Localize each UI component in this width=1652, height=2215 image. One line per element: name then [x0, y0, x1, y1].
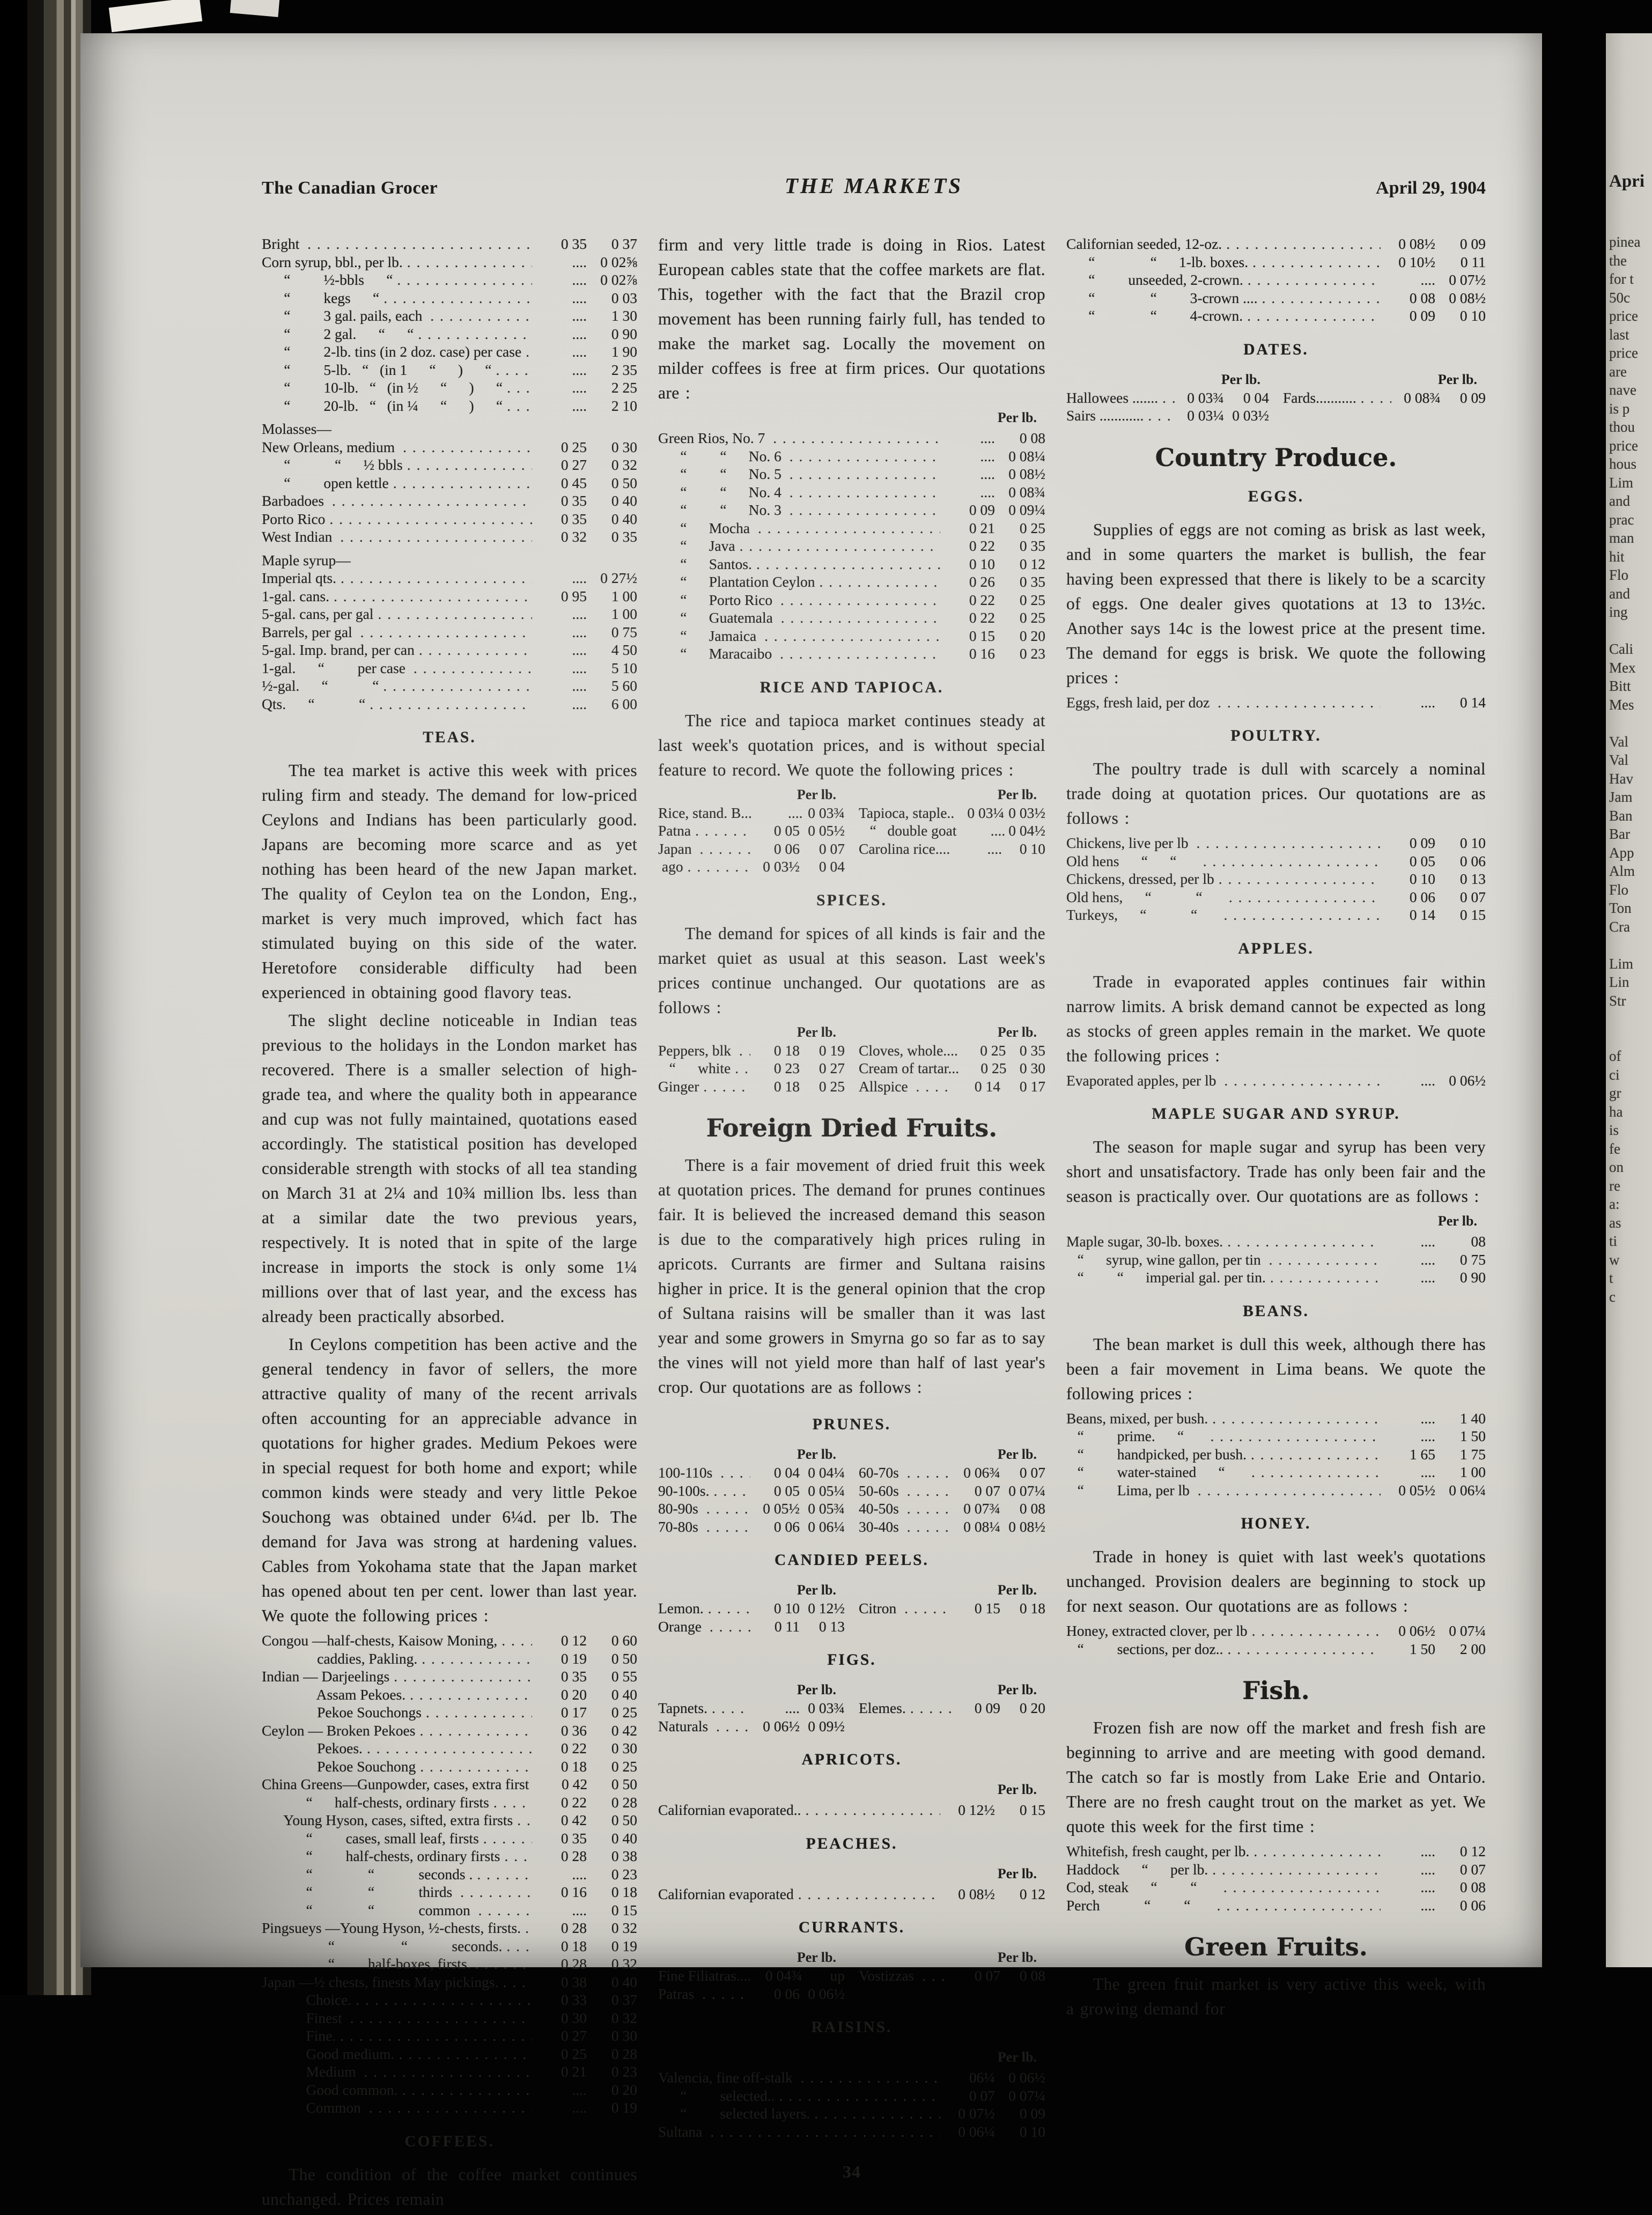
text-fragment: hous: [1609, 455, 1640, 474]
text-fragment: for t: [1609, 270, 1640, 289]
price-row: Qts. “ “....6 00: [262, 695, 637, 713]
per-lb-header: Per lb.: [859, 1581, 1045, 1599]
text-fragment: App: [1609, 844, 1640, 862]
price-row: “ open kettle0 450 50: [262, 474, 637, 492]
poultry-table: Chickens, live per lb 0 090 10Old hens “…: [1066, 834, 1486, 924]
dot-leader: [1262, 289, 1381, 307]
honey-table: Honey, extracted clover, per lb0 06½0 07…: [1066, 1622, 1486, 1658]
text-fragment: Flo: [1609, 881, 1640, 899]
dot-leader: [341, 569, 532, 587]
per-lb-header: Per lb.: [859, 1023, 1045, 1042]
text-fragment: Cra: [1609, 918, 1640, 936]
dot-leader: [916, 1077, 951, 1096]
dot-leader: [505, 1847, 533, 1865]
price-row: “ 2 gal. “ “....0 90: [262, 325, 637, 343]
dot-leader: [764, 627, 940, 645]
price-row: West Indian 0 320 35: [262, 528, 637, 546]
text-fragment: and: [1609, 585, 1640, 603]
dot-leader: [720, 1464, 750, 1482]
per-lb-header: Per lb.: [859, 1948, 1045, 1967]
dot-leader: [1223, 906, 1381, 924]
dot-leader: [907, 1518, 951, 1536]
dot-leader: [422, 1650, 532, 1668]
text-fragment: Ban: [1609, 807, 1640, 825]
text-fragment: Flo: [1609, 566, 1640, 585]
section-heading-currants: CURRANTS.: [658, 1919, 1045, 1937]
price-row: “ half-chests, ordinary firsts0 280 38: [262, 1847, 637, 1865]
dot-leader: [1196, 834, 1381, 852]
coffee-price-table: Green Rios, No. 7 ....0 08 “ “ No. 6 ...…: [658, 429, 1045, 663]
dot-leader: [383, 289, 532, 307]
dot-leader: [790, 501, 940, 519]
per-lb-header: Per lb.: [658, 786, 845, 804]
section-heading-apples: APPLES.: [1066, 940, 1486, 958]
dot-leader: [397, 271, 532, 289]
dot-leader: [340, 2027, 532, 2045]
rice-paragraph: The rice and tapioca market continues st…: [658, 708, 1045, 782]
price-row: Pekoe Souchong0 180 25: [262, 1758, 637, 1776]
middle-column: firm and very little trade is doing in R…: [658, 233, 1045, 2215]
price-row: “ Java0 220 35: [658, 537, 1045, 555]
dot-leader: [503, 1973, 532, 1991]
price-row: Medium 0 210 23: [262, 2063, 637, 2081]
per-lb-header: Per lb.: [859, 1445, 1045, 1464]
per-lb-header: Per lb.: [859, 786, 1045, 804]
text-fragment: on: [1609, 1158, 1640, 1177]
apples-paragraph: Trade in evaporated apples continues fai…: [1066, 970, 1486, 1068]
dot-leader: [475, 1955, 532, 1973]
text-fragment: 50c: [1609, 289, 1640, 307]
page-title: THE MARKETS: [785, 173, 963, 198]
price-row: “ “ No. 5 ....0 08½: [658, 465, 1045, 483]
coffees-paragraph: The condition of the coffee market conti…: [262, 2162, 637, 2212]
per-lb-header: Per lb.: [658, 1865, 1045, 1883]
price-row: “ handpicked, per bush.1 651 75: [1066, 1445, 1486, 1464]
dot-leader: [922, 1967, 951, 1985]
price-row: “ kegs “....0 03: [262, 289, 637, 307]
price-row: “ water-stained “ ....1 00: [1066, 1463, 1486, 1481]
text-fragment: is: [1609, 1121, 1640, 1140]
price-row: Peppers, blk 0 180 19: [658, 1042, 845, 1060]
dot-leader: [378, 605, 532, 623]
dot-leader: [332, 492, 532, 510]
honey-paragraph: Trade in honey is quiet with last week's…: [1066, 1545, 1486, 1619]
dot-leader: [801, 2069, 940, 2087]
text-fragment: Val: [1609, 733, 1640, 751]
per-lb-header: Per lb.: [658, 409, 1045, 427]
dot-leader: [703, 1077, 750, 1096]
price-row: 5-gal. Imp. brand, per can....4 50: [262, 641, 637, 659]
dot-leader: [798, 1885, 940, 1903]
price-row: Assam Pekoes.0 200 40: [262, 1686, 637, 1704]
issue-date: April 29, 1904: [1376, 178, 1486, 198]
text-fragment: thou: [1609, 418, 1640, 437]
text-fragment: Lim: [1609, 955, 1640, 973]
price-row: Haddock “ per lb.....0 07: [1066, 1860, 1486, 1879]
section-heading-rice: RICE AND TAPIOCA.: [658, 679, 1045, 697]
dot-leader: [1210, 1427, 1381, 1445]
text-fragment: t: [1609, 1269, 1640, 1288]
dot-leader: [430, 307, 532, 325]
dot-leader: [688, 858, 750, 876]
price-row: Californian evaporated0 08½0 12: [658, 1885, 1045, 1903]
price-row: Choice.0 330 37: [262, 1991, 637, 2009]
syrup-price-table: Bright 0 350 37Corn syrup, bbl., per lb.…: [262, 235, 637, 415]
price-row: Barbadoes 0 350 40: [262, 492, 637, 510]
price-row: 60-70s 0 06¾0 07: [859, 1464, 1045, 1482]
dot-leader: [1252, 253, 1381, 271]
price-row: 70-80s 0 060 06¼: [658, 1518, 845, 1536]
price-row: “ Jamaica 0 150 20: [658, 627, 1045, 645]
dot-leader: [1270, 1268, 1381, 1287]
price-row: 1-gal. “ per case ....5 10: [262, 659, 637, 677]
price-row: Indian — Darjeelings0 350 55: [262, 1667, 637, 1686]
torn-paper-sliver: [109, 0, 202, 32]
price-row: “ “ ½ bbls0 270 32: [262, 456, 637, 474]
group-label-row: Molasses—: [262, 420, 637, 438]
price-row: Elemes.0 090 20: [859, 1699, 1045, 1717]
dot-leader: [758, 519, 940, 537]
price-row: Congou —half-chests, Kaisow Moning,0 120…: [262, 1631, 637, 1650]
dot-leader: [712, 1699, 750, 1717]
price-row: “ “ No. 3 0 090 09¼: [658, 501, 1045, 519]
dot-leader: [517, 1811, 532, 1829]
dot-leader: [1269, 1251, 1381, 1269]
rice-table-left: Per lb. Rice, stand. B.......0 03¾Patna0…: [658, 786, 845, 876]
dot-leader: [907, 1500, 951, 1518]
text-fragment: Bitt: [1609, 677, 1640, 696]
dot-leader: [403, 438, 532, 456]
text-fragment: [1609, 622, 1640, 640]
price-row: Japan 0 060 07: [658, 840, 845, 858]
publication-name: The Canadian Grocer: [262, 178, 438, 198]
price-row: “ “ thirds 0 160 18: [262, 1883, 637, 1901]
dot-leader: [773, 429, 940, 447]
text-fragment: hit: [1609, 548, 1640, 566]
price-row: Barrels, per gal ....0 75: [262, 623, 637, 641]
dot-leader: [356, 1991, 532, 2009]
price-row: “ Porto Rico 0 220 25: [658, 591, 1045, 609]
text-fragment: Mes: [1609, 696, 1640, 714]
dot-leader: [369, 2099, 532, 2117]
rice-tapioca-table: Per lb. Rice, stand. B.......0 03¾Patna0…: [658, 786, 1045, 876]
price-row: “ Plantation Ceylon0 260 35: [658, 573, 1045, 591]
text-fragment: ti: [1609, 1232, 1640, 1251]
price-row: “ “ common ....0 15: [262, 1901, 637, 1919]
text-fragment: Jam: [1609, 788, 1640, 807]
price-row: Hallowees .......0 03¾0 04: [1066, 389, 1269, 407]
price-row: ago0 03½0 04: [658, 858, 845, 876]
page-number: 34: [658, 2162, 1045, 2182]
per-lb-header: Per lb.: [1066, 1212, 1486, 1230]
price-row: “ syrup, wine gallon, per tin ....0 75: [1066, 1251, 1486, 1269]
price-row: Tapioca, staple..0 03¼0 03½: [859, 804, 1045, 822]
price-row: Honey, extracted clover, per lb0 06½0 07…: [1066, 1622, 1486, 1640]
price-row: Perch “ “ ....0 06: [1066, 1896, 1486, 1915]
price-row: Pingsueys —Young Hyson, ½-chests, firsts…: [262, 1919, 637, 1937]
dot-leader: [483, 1829, 532, 1848]
teas-paragraph-2: The slight decline noticeable in Indian …: [262, 1008, 637, 1329]
price-row: Allspice 0 140 17: [859, 1077, 1045, 1096]
text-fragment: [1609, 1010, 1640, 1029]
dot-leader: [706, 1500, 750, 1518]
dot-leader: [460, 1883, 532, 1901]
price-row: “ “ seconds .....0 23: [262, 1865, 637, 1884]
spices-paragraph: The demand for spices of all kinds is fa…: [658, 921, 1045, 1020]
price-row: Sairs ............0 03¼0 03½: [1066, 407, 1269, 425]
dot-leader: [410, 1686, 532, 1704]
price-row: Pekoes.0 220 30: [262, 1739, 637, 1758]
price-row: “ ½-bbls “....0 02⅞: [262, 271, 637, 289]
dot-leader: [1218, 693, 1381, 712]
text-fragment: Val: [1609, 751, 1640, 770]
price-row: Valencia, fine off-stalk 06¼0 06½: [658, 2069, 1045, 2087]
price-row: Rice, stand. B.......0 03¾: [658, 804, 845, 822]
dot-leader: [1223, 1878, 1381, 1896]
price-row: Chickens, dressed, per lb0 100 13: [1066, 870, 1486, 888]
maple-sugar-paragraph: The season for maple sugar and syrup has…: [1066, 1135, 1486, 1209]
price-row: “ prime. “ ....1 50: [1066, 1427, 1486, 1445]
dot-leader: [407, 456, 532, 474]
price-row: “ “ imperial gal. per tin.....0 90: [1066, 1268, 1486, 1287]
dot-leader: [307, 235, 532, 253]
dot-leader: [706, 1518, 750, 1536]
coffee-continuation-paragraph: firm and very little trade is doing in R…: [658, 233, 1045, 405]
price-row: China Greens—Gunpowder, cases, extra fir…: [262, 1775, 637, 1793]
dot-leader: [910, 1699, 951, 1717]
price-row: Good common.....0 20: [262, 2081, 637, 2099]
price-row: Whitefish, fresh caught, per lb.....0 12: [1066, 1842, 1486, 1860]
text-fragment: pinea: [1609, 233, 1640, 252]
dot-leader: [477, 1865, 532, 1884]
per-lb-header: Per lb.: [859, 1681, 1045, 1699]
section-heading-dates: DATES.: [1066, 341, 1486, 359]
price-row: Old hens, “ “ 0 060 07: [1066, 888, 1486, 906]
price-row: 40-50s 0 07¾0 08: [859, 1500, 1045, 1518]
dot-leader: [781, 609, 940, 627]
dot-leader: [1162, 389, 1175, 407]
text-fragment: ci: [1609, 1066, 1640, 1084]
beans-table: Beans, mixed, per bush.....1 40 “ prime.…: [1066, 1409, 1486, 1500]
per-lb-header: Per lb.: [658, 1948, 845, 1967]
dot-leader: [695, 822, 750, 840]
price-row: 100-110s 0 040 04¼: [658, 1464, 845, 1482]
dot-leader: [806, 1801, 941, 1819]
price-row: Finest 0 300 32: [262, 2009, 637, 2027]
text-fragment: re: [1609, 1177, 1640, 1195]
text-fragment: Cali: [1609, 640, 1640, 659]
price-row: Common ....0 19: [262, 2099, 637, 2117]
text-fragment: Bar: [1609, 825, 1640, 844]
peaches-table: Californian evaporated0 08½0 12: [658, 1885, 1045, 1903]
price-row: Sultana 0 06¼0 10: [658, 2123, 1045, 2141]
price-row: Evaporated apples, per lb ....0 06½: [1066, 1072, 1486, 1090]
section-heading-spices: SPICES.: [658, 892, 1045, 910]
price-row: “ white0 230 27: [658, 1059, 845, 1077]
dot-leader: [820, 573, 940, 591]
dot-leader: [507, 379, 532, 397]
left-column: Bright 0 350 37Corn syrup, bbl., per lb.…: [262, 233, 637, 2215]
dot-leader: [350, 2009, 532, 2027]
dot-leader: [1217, 1896, 1381, 1915]
dot-leader: [790, 465, 940, 483]
dates-table: Per lb. Hallowees .......0 03¾0 04Sairs …: [1066, 371, 1486, 425]
molasses-price-table: Molasses—New Orleans, medium 0 250 30 “ …: [262, 420, 637, 546]
text-fragment: fe: [1609, 1140, 1640, 1158]
rice-table-right: Per lb. Tapioca, staple..0 03¼0 03½ “ do…: [859, 786, 1045, 876]
dot-leader: [507, 397, 532, 415]
text-fragment: Hav: [1609, 770, 1640, 788]
price-row: “ unseeded, 2-crown.....0 07½: [1066, 271, 1486, 289]
price-row: “ “ 3-crown ....0 080 08½: [1066, 289, 1486, 307]
price-row: Corn syrup, bbl., per lb.....0 02⅝: [262, 253, 637, 271]
dot-leader: [394, 1667, 532, 1686]
dot-leader: [418, 325, 532, 343]
dot-leader: [1227, 1232, 1381, 1251]
section-heading-beans: BEANS.: [1066, 1303, 1486, 1320]
dot-leader: [1253, 1842, 1381, 1860]
price-row: ½-gal. “ “....5 60: [262, 677, 637, 695]
price-row: “ “ 1-lb. boxes.0 10½0 11: [1066, 253, 1486, 271]
dot-leader: [414, 659, 532, 677]
maple-sugar-table: Maple sugar, 30-lb. boxes.....08 “ syrup…: [1066, 1232, 1486, 1287]
dot-leader: [1229, 888, 1381, 906]
price-row: “ 5-lb. “ (in 1 “ ) “....2 35: [262, 361, 637, 379]
text-fragment: price: [1609, 437, 1640, 455]
price-row: “ half-chests, ordinary firsts0 220 28: [262, 1793, 637, 1812]
price-row: “ Maracaibo 0 160 23: [658, 645, 1045, 663]
columns: Bright 0 350 37Corn syrup, bbl., per lb.…: [262, 233, 1486, 2215]
dot-leader: [1228, 1640, 1381, 1658]
prunes-table: Per lb. 100-110s 0 040 04¼90-100s.0 050 …: [658, 1445, 1045, 1535]
dot-leader: [419, 1722, 532, 1740]
dot-leader: [1203, 852, 1381, 870]
price-row: Fards...........0 08¾0 09: [1283, 389, 1486, 407]
dot-leader: [904, 1599, 951, 1618]
text-fragment: man: [1609, 529, 1640, 548]
dot-leader: [501, 1631, 532, 1650]
dot-leader: [710, 2123, 940, 2141]
dot-leader: [756, 555, 940, 573]
section-heading-fish: Fish.: [1066, 1676, 1486, 1705]
price-row: Patras 0 060 06½: [658, 1985, 845, 2003]
price-row: Californian evaporated..0 12½0 15: [658, 1801, 1045, 1819]
dot-leader: [329, 510, 532, 528]
section-heading-honey: HONEY.: [1066, 1515, 1486, 1533]
price-row: Californian seeded, 12-oz.0 08½0 09: [1066, 235, 1486, 253]
dot-leader: [426, 1703, 532, 1722]
price-row: Green Rios, No. 7 ....0 08: [658, 429, 1045, 447]
price-row: Chickens, live per lb 0 090 10: [1066, 834, 1486, 852]
dot-leader: [790, 447, 940, 466]
text-fragment: [1609, 936, 1640, 955]
tea-price-table: Congou —half-chests, Kaisow Moning,0 120…: [262, 1631, 637, 2117]
price-row: Ginger0 180 25: [658, 1077, 845, 1096]
text-fragment: is p: [1609, 400, 1640, 418]
price-row: 1-gal. cans.0 951 00: [262, 587, 637, 606]
price-row: Japan —½ chests, finests May pickings.0 …: [262, 1973, 637, 1991]
section-heading-coffees: COFFEES.: [262, 2133, 637, 2151]
price-row: “ sections, per doz..1 502 00: [1066, 1640, 1486, 1658]
price-row: 90-100s.0 050 05¼: [658, 1482, 845, 1500]
section-heading-eggs: EGGS.: [1066, 488, 1486, 506]
dot-leader: [493, 1793, 532, 1812]
dot-leader: [814, 2105, 940, 2123]
price-row: Citron 0 150 18: [859, 1599, 1045, 1618]
right-column: Californian seeded, 12-oz.0 08½0 09 “ “ …: [1066, 233, 1486, 2215]
adjacent-page-date-fragment: Apri: [1609, 172, 1644, 191]
dot-leader: [1247, 307, 1381, 325]
dot-leader: [407, 253, 532, 271]
price-row: Imperial qts.....0 27½: [262, 569, 637, 587]
dot-leader: [1219, 870, 1381, 888]
price-row: Maple sugar, 30-lb. boxes.....08: [1066, 1232, 1486, 1251]
price-row: “ Lima, per lb 0 05½0 06¼: [1066, 1481, 1486, 1500]
dot-leader: [420, 1758, 532, 1776]
section-heading-peaches: PEACHES.: [658, 1835, 1045, 1853]
text-fragment: prac: [1609, 511, 1640, 529]
text-fragment: c: [1609, 1288, 1640, 1306]
text-fragment: [1609, 714, 1640, 733]
per-lb-header: Per lb.: [1283, 371, 1486, 389]
dot-leader: [779, 2087, 940, 2105]
dot-leader: [1212, 1860, 1381, 1879]
dot-leader: [710, 1618, 750, 1636]
price-row: Vostizzas 0 070 08: [859, 1967, 1045, 1985]
apples-table: Evaporated apples, per lb ....0 06½: [1066, 1072, 1486, 1090]
dot-leader: [334, 587, 532, 606]
dot-leader: [1248, 271, 1381, 289]
dot-leader: [367, 1739, 532, 1758]
text-fragment: Alm: [1609, 862, 1640, 881]
text-fragment: Lin: [1609, 973, 1640, 992]
per-lb-header: Per lb.: [1066, 371, 1269, 389]
section-heading-raisins: RAISINS.: [658, 2019, 1045, 2036]
section-heading-foreign-dried-fruits: Foreign Dried Fruits.: [658, 1113, 1045, 1142]
price-row: “ 3 gal. pails, each ....1 30: [262, 307, 637, 325]
price-row: “ selected..0 070 07¼: [658, 2087, 1045, 2105]
green-fruits-paragraph: The green fruit market is very active th…: [1066, 1972, 1486, 2021]
text-fragment: nave: [1609, 381, 1640, 400]
dot-leader: [780, 645, 940, 663]
price-row: Cod, steak “ “ ....0 08: [1066, 1878, 1486, 1896]
text-fragment: Lim: [1609, 474, 1640, 492]
dot-leader: [702, 1985, 750, 2003]
dot-leader: [780, 591, 940, 609]
candied-peels-table: Per lb. Lemon.0 100 12½Orange 0 110 13 P…: [658, 1581, 1045, 1635]
price-row: “ 20-lb. “ (in ¼ “ ) “....2 10: [262, 397, 637, 415]
price-row: “ 2-lb. tins (in 2 doz. case) per case..…: [262, 343, 637, 361]
price-row: Carolina rice........0 10: [859, 840, 1045, 858]
price-row: Beans, mixed, per bush.....1 40: [1066, 1409, 1486, 1428]
dot-leader: [402, 2081, 532, 2099]
text-fragment: and: [1609, 492, 1640, 511]
raisins-table: Valencia, fine off-stalk 06¼0 06½ “ sele…: [658, 2069, 1045, 2140]
price-row: New Orleans, medium 0 250 30: [262, 438, 637, 456]
text-fragment: the: [1609, 252, 1640, 270]
price-row: Patna0 050 05½: [658, 822, 845, 840]
section-heading-candied-peels: CANDIED PEELS.: [658, 1552, 1045, 1569]
section-heading-maple-sugar: MAPLE SUGAR AND SYRUP.: [1066, 1105, 1486, 1123]
dot-leader: [907, 1464, 951, 1482]
dot-leader: [790, 483, 940, 501]
price-row: “ 10-lb. “ (in ½ “ ) “....2 25: [262, 379, 637, 397]
dot-leader: [370, 695, 532, 713]
price-row: Cream of tartar...0 250 30: [859, 1059, 1045, 1077]
price-row: “ “ seconds.0 180 19: [262, 1937, 637, 1955]
price-row: Ceylon — Broken Pekoes0 360 42: [262, 1722, 637, 1740]
price-row: Lemon.0 100 12½: [658, 1599, 845, 1618]
